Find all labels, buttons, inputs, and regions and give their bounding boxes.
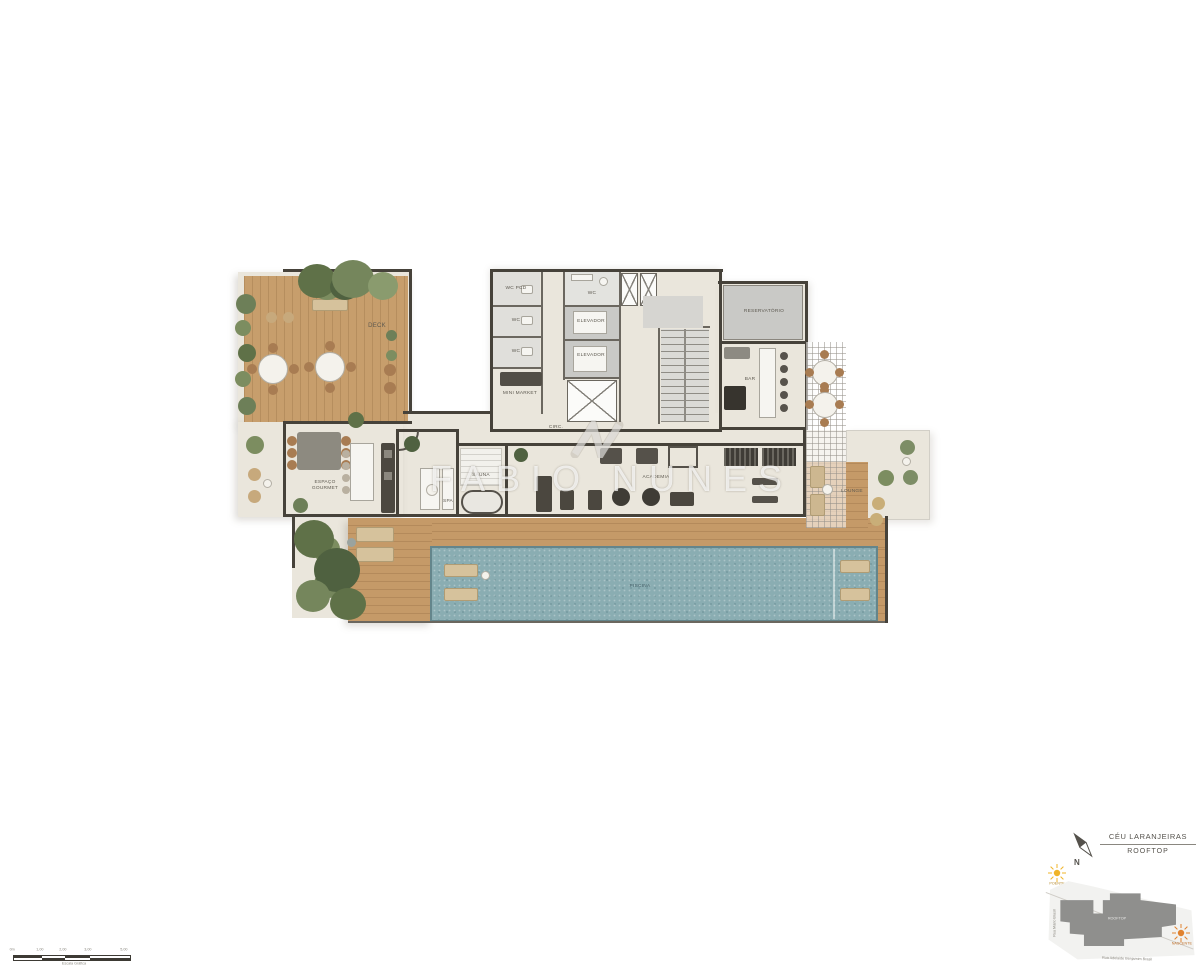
- sun-icon: [1172, 924, 1190, 942]
- elevador-label: ELEVADOR: [571, 353, 611, 359]
- wall: [490, 429, 722, 432]
- shaft-icon: [621, 273, 638, 306]
- appliance-icon: [384, 472, 392, 480]
- wall: [505, 443, 508, 517]
- gym-rack: [536, 476, 552, 512]
- gym-machine: [612, 488, 630, 506]
- wc-label: WC: [498, 318, 535, 324]
- plant: [235, 320, 251, 336]
- street-bottom-label: Rua Adelaide Benjamim Brasil: [1093, 956, 1161, 962]
- spa-tub: [461, 490, 503, 514]
- sauna-label: SAUNA: [463, 473, 498, 479]
- wall: [348, 621, 888, 623]
- pool-side-table: [481, 571, 490, 580]
- deck-table: [258, 354, 288, 384]
- wall: [719, 427, 808, 430]
- lounge-label: LOUNGE: [834, 489, 869, 495]
- partition: [563, 377, 619, 379]
- bar-counter: [759, 348, 776, 418]
- lounge-side-table: [902, 457, 911, 466]
- piscina-label: PISCINA: [622, 584, 657, 590]
- reservatorio-label: RESERVATÓRIO: [734, 309, 795, 315]
- pergola-table: [812, 392, 838, 418]
- gym-bench: [752, 478, 778, 485]
- spa-label: SPA: [440, 499, 456, 505]
- dumbbell-rack-icon: [724, 448, 758, 466]
- deck-table: [315, 352, 345, 382]
- plant: [404, 436, 420, 452]
- deck-chairs: [268, 343, 278, 353]
- island-stools-icon: [342, 450, 350, 458]
- scale-segments: [14, 956, 130, 960]
- wc-label: WC: [572, 291, 612, 297]
- sink-counter-icon: [571, 274, 593, 281]
- spa-ottoman: [426, 484, 438, 496]
- legend-divider: [1100, 844, 1196, 845]
- wall: [885, 516, 888, 623]
- wall: [283, 421, 286, 517]
- wall: [409, 269, 412, 414]
- elevator-hall: [643, 296, 703, 328]
- plant: [332, 260, 374, 298]
- wall: [805, 281, 808, 345]
- stairs-divider: [684, 329, 686, 422]
- scale-caption: Escala Gráfica: [55, 962, 92, 966]
- mini-market-label: MINI MARKET: [502, 391, 537, 397]
- sun-east-label: NASCENTE: [1172, 942, 1191, 946]
- scale-tick: 5,00: [120, 948, 127, 952]
- lounge-sofa: [810, 494, 825, 516]
- sun-lounger: [356, 547, 394, 562]
- plant: [235, 371, 251, 387]
- scale-seg: [90, 958, 130, 960]
- balcony-table: [263, 479, 272, 488]
- academia-label: ACADEMIA: [634, 475, 679, 481]
- plant: [246, 436, 264, 454]
- lounge-pouf: [903, 470, 918, 485]
- scale-tick: 1,00: [36, 948, 43, 952]
- partition: [493, 367, 541, 369]
- shaft-icon: [567, 380, 617, 422]
- wc-label: WC: [498, 349, 535, 355]
- gym-bench: [752, 496, 778, 503]
- scale-seg: [65, 956, 90, 958]
- wall: [458, 443, 806, 446]
- compass-north-label: N: [1074, 858, 1080, 867]
- kitchen-island: [350, 443, 374, 501]
- bar-stools-icon: [780, 352, 788, 360]
- scale-seg: [42, 958, 65, 960]
- elevador-label: ELEVADOR: [571, 319, 611, 325]
- balcony-chair: [248, 468, 261, 481]
- appliance-icon: [384, 450, 392, 458]
- wall: [722, 341, 806, 344]
- lounge-pouf: [900, 440, 915, 455]
- site-building-label: ROOFTOP: [1102, 917, 1133, 921]
- pergola-chairs: [820, 382, 829, 391]
- scale-tick: 2,00: [59, 948, 66, 952]
- gym-cage: [668, 446, 698, 468]
- plant: [514, 448, 528, 462]
- scale-seg: [14, 956, 42, 958]
- plant: [293, 498, 308, 513]
- scale-tick: 0m: [10, 948, 15, 952]
- gym-bike: [588, 490, 602, 510]
- wall: [283, 514, 806, 517]
- pool-ledge-divider: [833, 549, 835, 619]
- wall: [718, 281, 808, 284]
- wall: [719, 269, 722, 430]
- gym-machine: [636, 448, 658, 464]
- deck-armchair: [266, 312, 277, 323]
- site-plan: ROOFTOP Rua Mário Brasil Rua Adelaide Be…: [1044, 876, 1196, 962]
- plant: [878, 470, 894, 486]
- plant: [296, 580, 330, 612]
- dumbbell-rack-icon: [762, 448, 796, 466]
- plant: [238, 397, 256, 415]
- plant: [238, 344, 256, 362]
- circ-label: CIRC.: [543, 425, 569, 431]
- bar-shelf-icon: [724, 347, 750, 359]
- wc-pcd-label: WC PCD: [498, 286, 535, 292]
- espaco-gourmet-label: ESPAÇO GOURMET: [307, 480, 344, 492]
- pool-lounger: [444, 588, 478, 601]
- pool-lounger: [840, 588, 870, 601]
- wicker-pouf: [872, 497, 885, 510]
- sun-lounger: [356, 527, 394, 542]
- sauna-bench: [460, 448, 502, 486]
- wall: [403, 411, 493, 414]
- scale-bar: 0m 1,00 2,00 3,00 5,00 Escala Gráfica: [14, 948, 132, 970]
- wicker-pouf: [870, 513, 883, 526]
- pergola-chairs: [820, 350, 829, 359]
- deck-bench: [312, 299, 348, 311]
- lounge-table: [822, 484, 833, 495]
- pool-lounger: [840, 560, 870, 573]
- gym-machine: [670, 492, 694, 506]
- gym-bike: [560, 490, 574, 510]
- floor-name: ROOFTOP: [1096, 848, 1200, 855]
- plant: [330, 588, 366, 620]
- gym-machine: [642, 488, 660, 506]
- legend-block: N CÉU LARANJEIRAS ROOFTOP POENTE ROOFTOP…: [1030, 824, 1200, 974]
- bar-label: BAR: [742, 377, 758, 383]
- wicker-chair: [384, 364, 396, 376]
- partition: [541, 272, 543, 414]
- toilet-icon: [599, 277, 608, 286]
- gym-machine: [600, 448, 622, 464]
- dining-table: [297, 432, 341, 470]
- plant: [348, 412, 364, 428]
- potted-plant: [386, 330, 397, 341]
- pool-lounger: [444, 564, 478, 577]
- lounger-side-table: [347, 538, 356, 547]
- deck-label: DECK: [352, 323, 402, 331]
- deck-chairs: [325, 341, 335, 351]
- plant: [298, 264, 336, 298]
- bar-cabinet-icon: [724, 386, 746, 410]
- market-shelf-icon: [500, 372, 542, 386]
- project-name: CÉU LARANJEIRAS: [1096, 832, 1200, 841]
- floorplan-canvas: DECK WC PCD WC WC MINI MARKET WC ELEVADO…: [0, 0, 1200, 977]
- plant: [236, 294, 256, 314]
- wall: [456, 429, 459, 517]
- plant: [368, 272, 398, 300]
- dining-chairs: [287, 436, 297, 446]
- scale-tick: 3,00: [84, 948, 91, 952]
- street-left-label: Rua Mário Brasil: [1053, 901, 1057, 944]
- compass-icon: [1068, 830, 1098, 860]
